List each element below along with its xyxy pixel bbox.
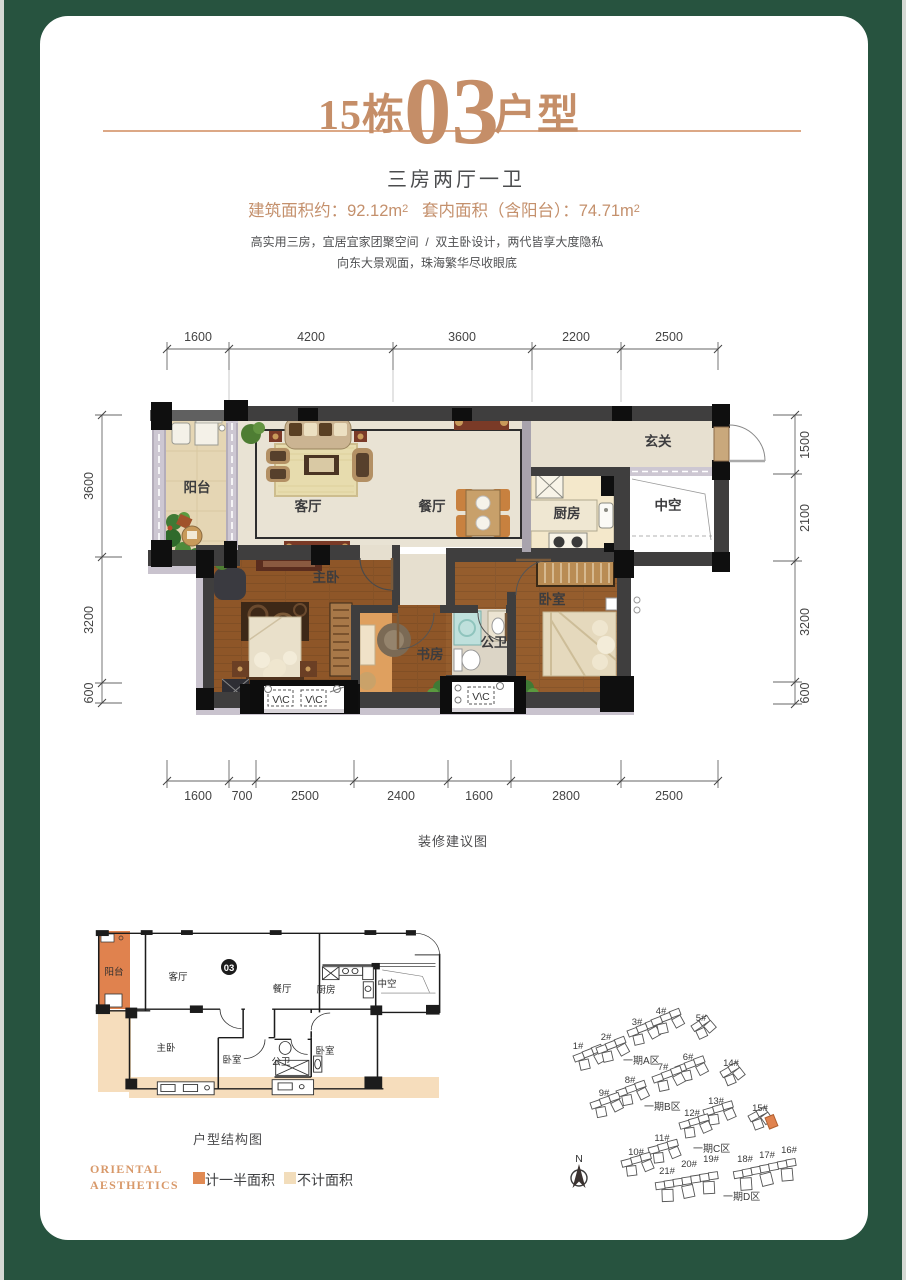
svg-text:V\C: V\C [272,694,290,706]
svg-text:玄关: 玄关 [645,433,673,449]
svg-text:一期A区: 一期A区 [623,1055,660,1067]
svg-text:2800: 2800 [552,789,580,803]
svg-text:3600: 3600 [448,330,476,344]
svg-text:4200: 4200 [297,330,325,344]
svg-text:2500: 2500 [655,789,683,803]
svg-text:1#: 1# [573,1041,584,1052]
svg-text:03: 03 [224,963,235,974]
svg-text:2200: 2200 [562,330,590,344]
svg-text:600: 600 [798,683,812,704]
svg-text:14#: 14# [723,1058,740,1069]
svg-text:阳台: 阳台 [184,479,211,495]
svg-text:13#: 13# [708,1096,725,1107]
svg-text:客厅: 客厅 [294,498,322,514]
svg-text:5#: 5# [696,1013,707,1024]
svg-text:1600: 1600 [184,330,212,344]
svg-text:中空: 中空 [655,497,682,513]
svg-text:2#: 2# [601,1032,612,1043]
svg-text:一期C区: 一期C区 [693,1143,730,1155]
svg-text:11#: 11# [654,1133,670,1144]
svg-text:书房: 书房 [417,646,444,662]
svg-text:3200: 3200 [82,606,96,634]
svg-text:2400: 2400 [387,789,415,803]
svg-text:9#: 9# [599,1088,610,1099]
svg-text:厨房: 厨房 [554,505,581,521]
svg-text:21#: 21# [659,1166,676,1177]
svg-text:3600: 3600 [82,472,96,500]
svg-text:主卧: 主卧 [313,569,340,585]
svg-text:3#: 3# [632,1017,643,1028]
svg-text:600: 600 [82,683,96,704]
svg-text:1500: 1500 [798,431,812,459]
svg-text:一期D区: 一期D区 [723,1191,760,1203]
svg-text:客厅: 客厅 [168,971,188,983]
svg-text:4#: 4# [656,1006,667,1017]
svg-text:12#: 12# [684,1108,701,1119]
svg-text:厨房: 厨房 [316,984,335,996]
svg-text:卧室: 卧室 [222,1054,241,1066]
svg-text:餐厅: 餐厅 [418,498,446,514]
svg-text:8#: 8# [625,1075,636,1086]
svg-text:餐厅: 餐厅 [272,983,292,995]
svg-text:卧室: 卧室 [539,591,567,607]
svg-text:16#: 16# [781,1145,798,1156]
svg-text:卧室: 卧室 [315,1045,334,1057]
svg-text:1600: 1600 [465,789,493,803]
svg-text:20#: 20# [681,1159,698,1170]
svg-text:公卫: 公卫 [481,635,508,650]
svg-text:3200: 3200 [798,608,812,636]
svg-text:10#: 10# [628,1147,645,1158]
svg-text:2500: 2500 [291,789,319,803]
svg-text:公卫: 公卫 [271,1057,291,1068]
svg-text:2500: 2500 [655,330,683,344]
svg-text:19#: 19# [703,1154,720,1165]
svg-text:17#: 17# [759,1150,776,1161]
svg-text:18#: 18# [737,1154,754,1165]
svg-text:N: N [575,1153,583,1165]
svg-text:700: 700 [232,789,253,803]
svg-text:中空: 中空 [377,978,396,990]
svg-text:2100: 2100 [798,504,812,532]
svg-text:V\C: V\C [472,691,490,703]
svg-text:15#: 15# [752,1103,769,1114]
svg-text:V\C: V\C [305,694,323,706]
svg-text:6#: 6# [683,1052,694,1063]
svg-text:1600: 1600 [184,789,212,803]
svg-text:一期B区: 一期B区 [644,1101,681,1113]
svg-text:主卧: 主卧 [156,1042,176,1054]
svg-text:阳台: 阳台 [104,966,123,978]
